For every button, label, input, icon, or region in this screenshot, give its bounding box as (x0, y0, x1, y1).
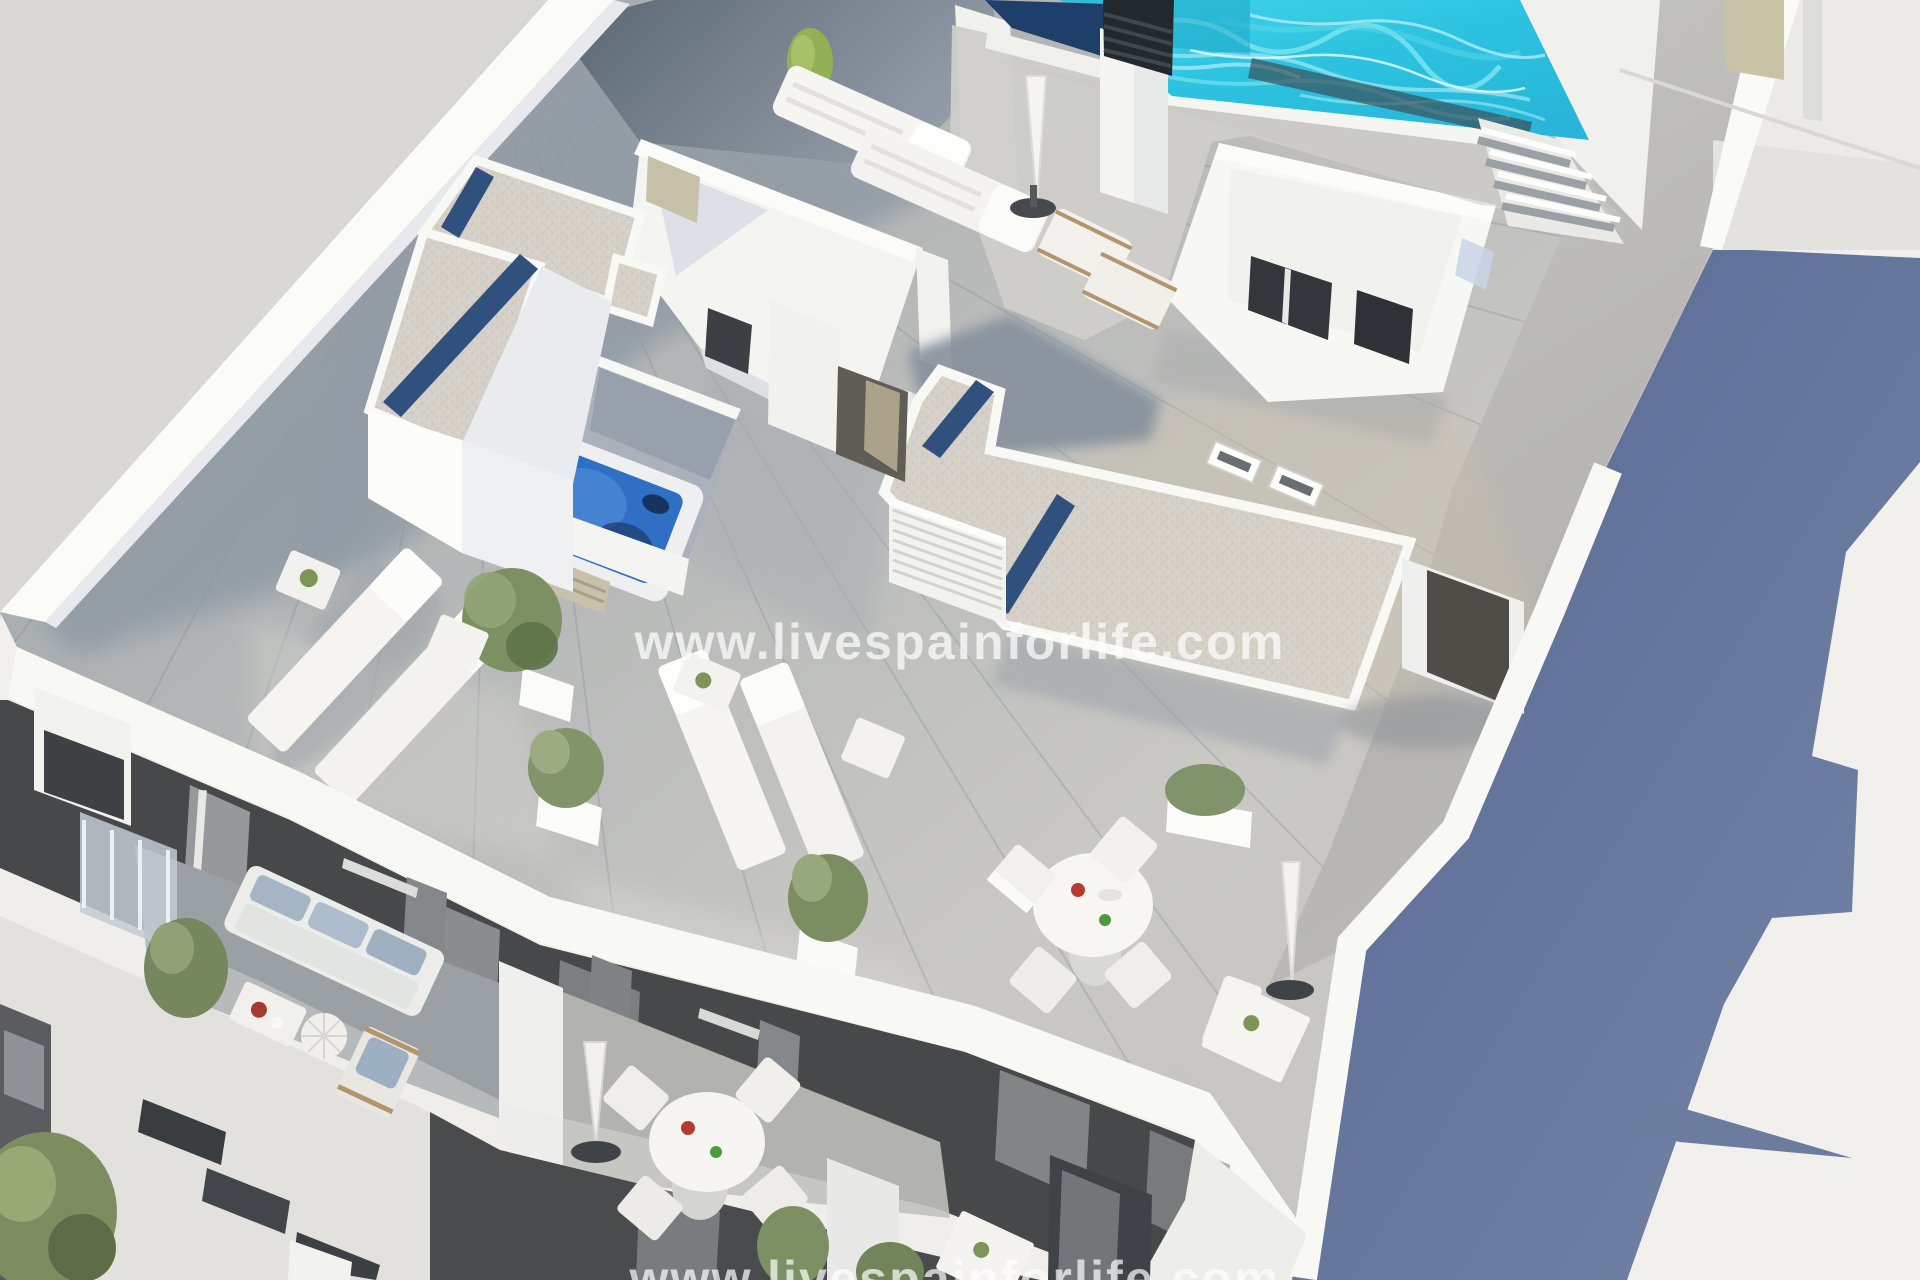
svg-text:www.livespainforlife.com: www.livespainforlife.com (628, 1251, 1280, 1280)
svg-text:www.livespainforlife.com: www.livespainforlife.com (633, 614, 1285, 670)
